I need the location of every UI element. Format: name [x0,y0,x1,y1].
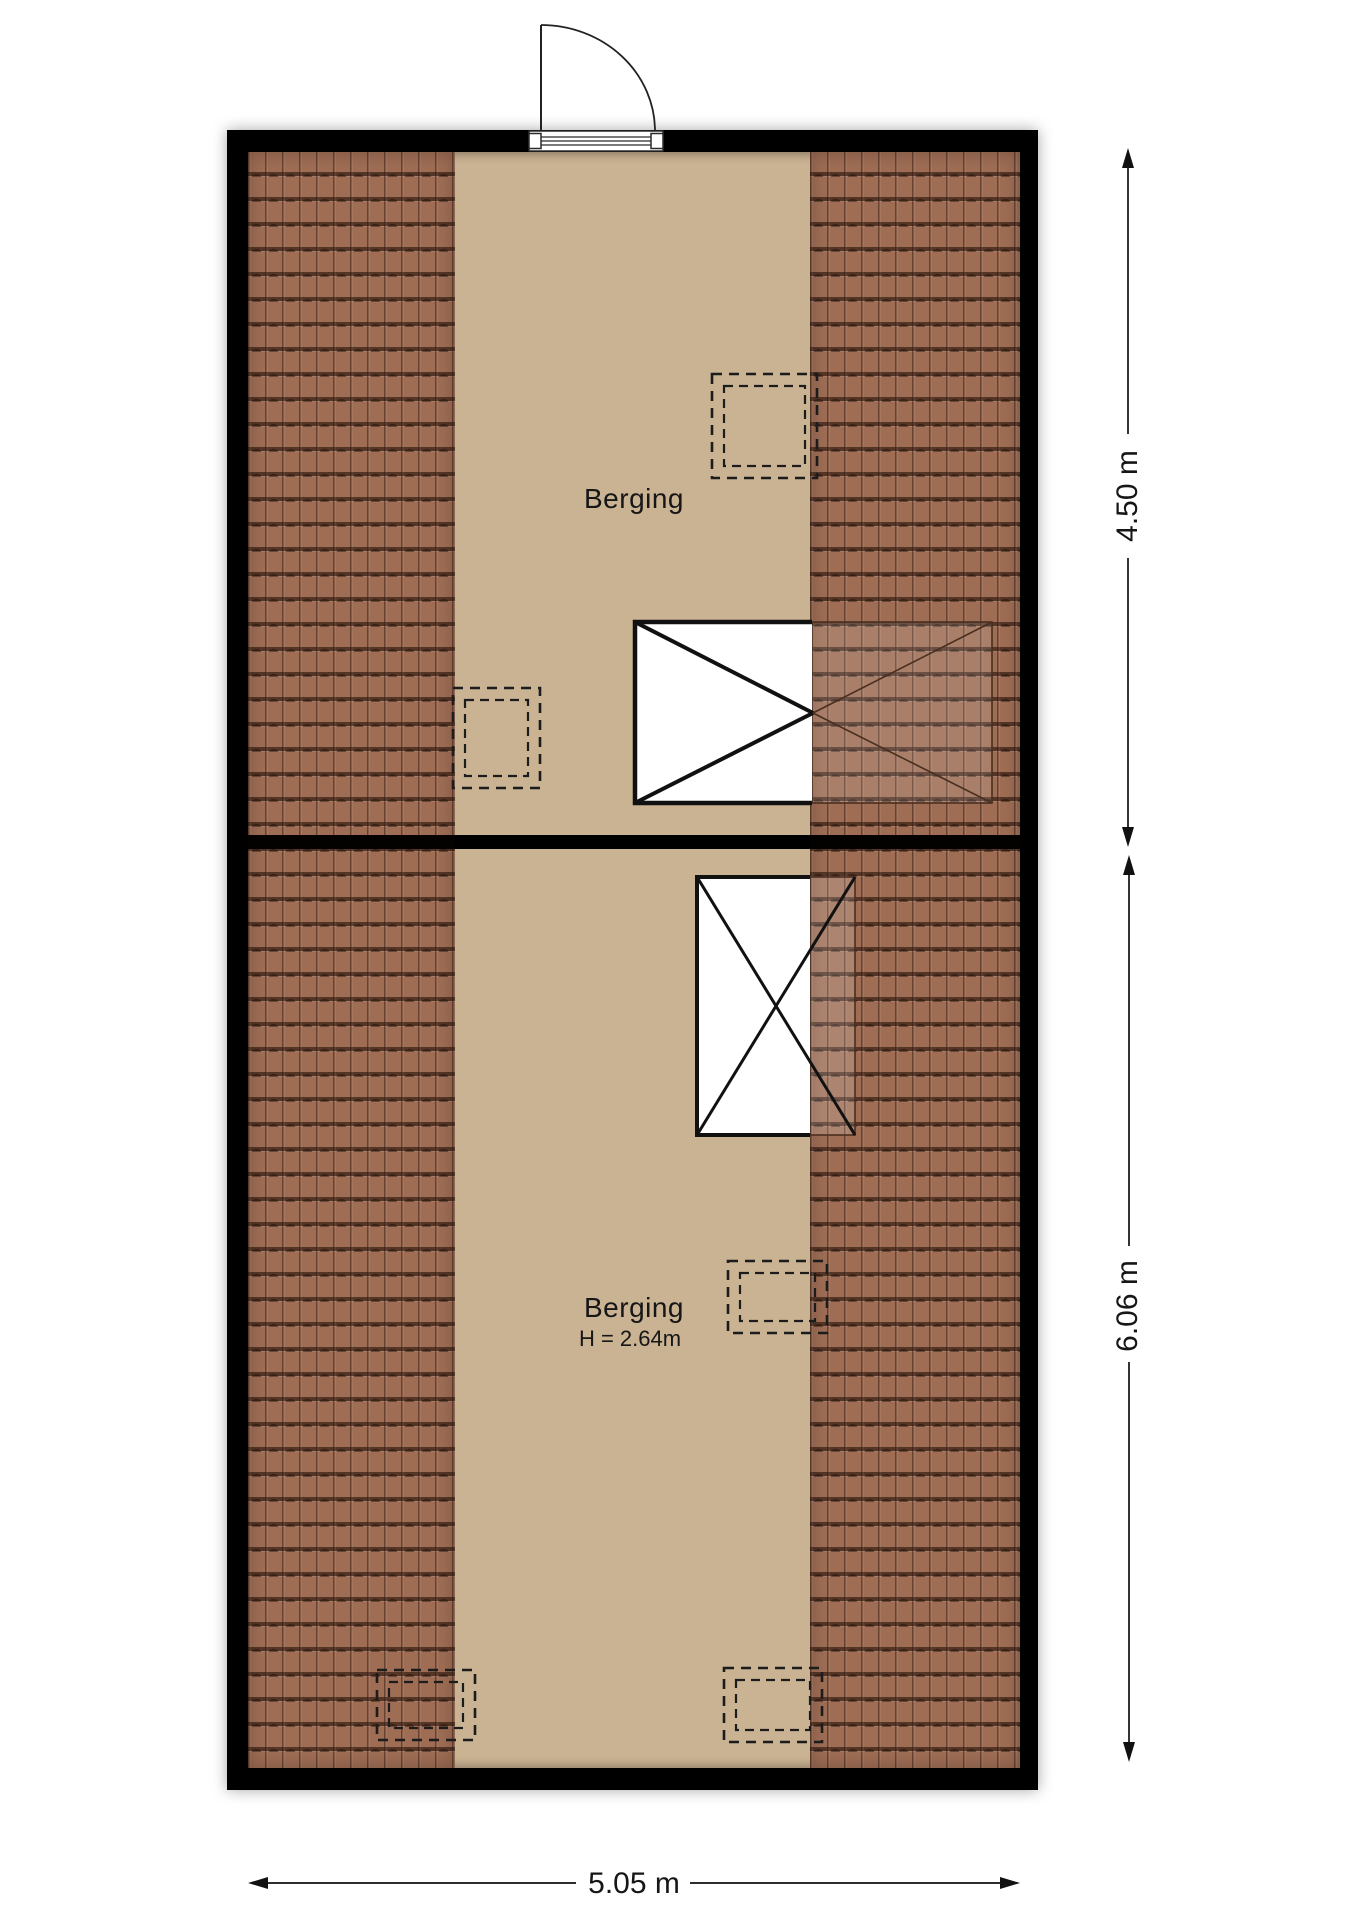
divider-wall-shadow-left [248,835,455,849]
dimension-label-right-top: 4.50 m [1111,450,1145,542]
arrow-down-icon [1123,1742,1135,1762]
dimension-label-right-bottom: 6.06 m [1111,1260,1145,1352]
interior-floor [248,152,1020,1768]
roof-tiles-left [248,152,455,1768]
arrow-down-icon [1122,827,1134,847]
arrow-left-icon [248,1877,268,1889]
arrow-right-icon [1000,1877,1020,1889]
dimension-label-bottom: 5.05 m [588,1867,680,1901]
floorplan-canvas: Berging Berging H = 2.64m 4.50 m 6.06 m … [0,0,1358,1920]
building-outline [227,130,1038,1790]
room-label-top: Berging [584,483,684,515]
room-height-note: H = 2.64m [579,1326,681,1352]
arrow-up-icon [1123,855,1135,875]
roof-tiles-right [810,152,1020,1768]
room-label-bottom: Berging [584,1292,684,1324]
divider-wall-shadow-right [810,835,1020,849]
arrow-up-icon [1122,148,1134,168]
